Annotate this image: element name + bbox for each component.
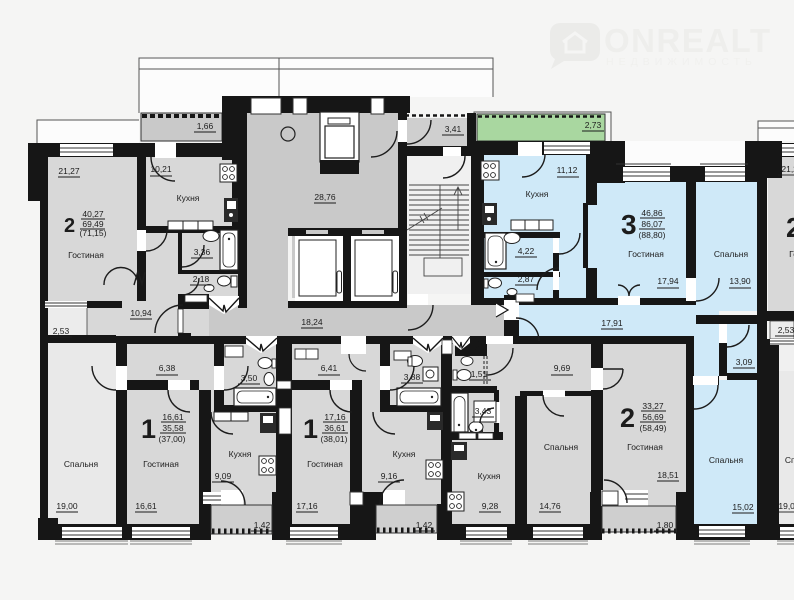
svg-text:ONREALT: ONREALT [604, 22, 772, 59]
svg-text:2,53: 2,53 [778, 325, 794, 335]
svg-text:1: 1 [141, 414, 156, 444]
svg-text:Гостиная: Гостиная [628, 249, 664, 259]
svg-text:3,41: 3,41 [445, 124, 462, 134]
svg-text:17,91: 17,91 [601, 318, 623, 328]
svg-text:11,12: 11,12 [557, 165, 578, 175]
svg-text:Гостиная: Гостиная [789, 249, 794, 259]
svg-text:1,42: 1,42 [416, 520, 433, 530]
svg-text:Спальня: Спальня [785, 455, 794, 465]
svg-text:10,21: 10,21 [150, 164, 172, 174]
svg-text:28,76: 28,76 [314, 192, 336, 202]
svg-text:35,58: 35,58 [162, 423, 184, 433]
svg-text:2,73: 2,73 [585, 120, 602, 130]
svg-text:(37,00): (37,00) [159, 434, 186, 444]
svg-text:33,27: 33,27 [642, 401, 664, 411]
svg-text:1,42: 1,42 [254, 520, 271, 530]
svg-text:Гостиная: Гостиная [307, 459, 343, 469]
svg-text:9,28: 9,28 [482, 501, 499, 511]
svg-text:Спальня: Спальня [544, 442, 579, 452]
svg-text:21,27: 21,27 [58, 166, 80, 176]
svg-text:1,51: 1,51 [471, 369, 488, 379]
svg-text:10,94: 10,94 [130, 308, 152, 318]
svg-text:Кухня: Кухня [177, 193, 200, 203]
svg-text:Гостиная: Гостиная [68, 250, 104, 260]
svg-text:21,27: 21,27 [781, 164, 794, 174]
svg-text:Спальня: Спальня [64, 459, 99, 469]
svg-text:Кухня: Кухня [478, 471, 501, 481]
svg-text:(71,15): (71,15) [80, 228, 107, 238]
svg-text:86,07: 86,07 [641, 219, 663, 229]
svg-text:18,51: 18,51 [657, 470, 679, 480]
svg-text:2,87: 2,87 [518, 274, 535, 284]
svg-text:НЕДВИЖИМОСТЬ: НЕДВИЖИМОСТЬ [606, 56, 757, 68]
svg-text:2: 2 [786, 212, 794, 243]
svg-text:2: 2 [620, 403, 635, 433]
svg-text:17,94: 17,94 [657, 276, 679, 286]
svg-text:14,76: 14,76 [539, 501, 561, 511]
svg-text:3,09: 3,09 [736, 357, 753, 367]
svg-text:36,61: 36,61 [324, 423, 346, 433]
svg-text:Гостиная: Гостиная [627, 442, 663, 452]
svg-text:3,36: 3,36 [194, 247, 211, 257]
svg-text:13,90: 13,90 [729, 276, 751, 286]
svg-text:Кухня: Кухня [393, 449, 416, 459]
svg-text:17,16: 17,16 [296, 501, 318, 511]
svg-text:4,22: 4,22 [518, 246, 535, 256]
svg-text:19,00: 19,00 [56, 501, 78, 511]
svg-text:Спальня: Спальня [709, 455, 744, 465]
svg-text:(58,49): (58,49) [640, 423, 667, 433]
svg-text:Кухня: Кухня [229, 449, 252, 459]
svg-text:Спальня: Спальня [714, 249, 749, 259]
svg-text:16,61: 16,61 [135, 501, 157, 511]
svg-text:6,38: 6,38 [159, 363, 176, 373]
svg-text:19,00: 19,00 [778, 501, 794, 511]
svg-text:9,16: 9,16 [381, 471, 398, 481]
svg-text:16,61: 16,61 [162, 412, 184, 422]
svg-text:9,69: 9,69 [554, 363, 571, 373]
svg-text:3,50: 3,50 [241, 373, 258, 383]
svg-text:1: 1 [303, 414, 318, 444]
svg-text:18,24: 18,24 [301, 317, 323, 327]
svg-text:2,53: 2,53 [53, 326, 70, 336]
svg-text:(88,80): (88,80) [639, 230, 666, 240]
svg-text:2,18: 2,18 [193, 274, 210, 284]
svg-text:6,41: 6,41 [321, 363, 338, 373]
svg-text:56,69: 56,69 [642, 412, 664, 422]
svg-text:46,86: 46,86 [641, 208, 663, 218]
svg-text:Гостиная: Гостиная [143, 459, 179, 469]
svg-text:(38,01): (38,01) [321, 434, 348, 444]
svg-text:40,27: 40,27 [82, 209, 104, 219]
svg-text:1,66: 1,66 [197, 121, 214, 131]
svg-text:2: 2 [64, 215, 75, 237]
svg-text:3,43: 3,43 [475, 406, 492, 416]
svg-text:3: 3 [621, 209, 637, 240]
svg-text:1,80: 1,80 [657, 520, 674, 530]
svg-text:3,88: 3,88 [404, 372, 421, 382]
svg-text:15,02: 15,02 [732, 502, 754, 512]
svg-text:Кухня: Кухня [526, 189, 549, 199]
svg-text:17,16: 17,16 [324, 412, 346, 422]
svg-text:9,09: 9,09 [215, 471, 232, 481]
